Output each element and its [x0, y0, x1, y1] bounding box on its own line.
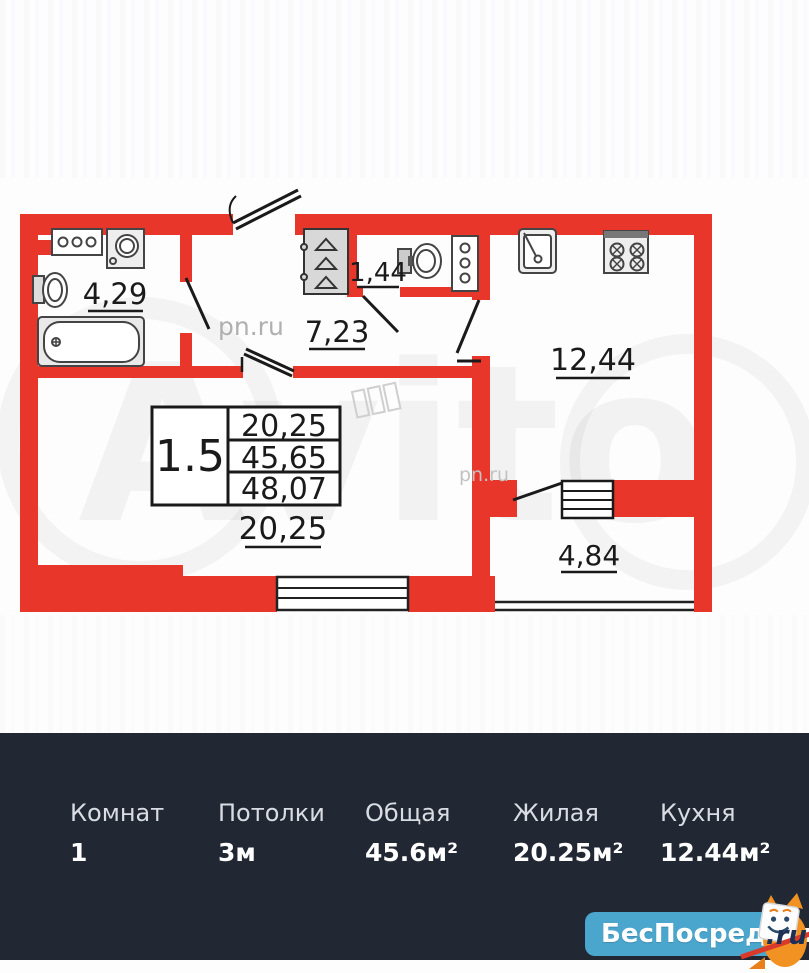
washing-machine-icon: [107, 229, 144, 268]
room-area-living: 20,25: [239, 511, 328, 547]
toilet-icon: [33, 273, 67, 307]
summary-panel: Комнат 1 Потолки 3м Общая 45.6м² Жилая 2…: [0, 733, 809, 960]
bathtub-icon: [38, 317, 144, 366]
room-area-wc: 1,44: [349, 258, 407, 288]
summary-value: 45.6м²: [365, 838, 458, 867]
summary-col-kitchen-area: Кухня 12.44м²: [660, 799, 770, 867]
balcony-step-icon: [562, 481, 613, 518]
summary-value: 20.25м²: [513, 838, 623, 867]
logo-tld: .ru: [766, 921, 807, 951]
sink-icon: [519, 229, 556, 273]
summary-label: Комнат: [70, 799, 164, 827]
summary-col-total-area: Общая 45.6м²: [365, 799, 458, 867]
pn-watermark-lower: pn.ru: [459, 464, 509, 486]
entry-door: [230, 190, 301, 229]
info-table-row-3: 48,07: [241, 472, 327, 507]
pn-watermark-upper: pn.ru: [218, 312, 284, 341]
shelf-icon: [452, 236, 478, 291]
cabinet-icon: [52, 229, 102, 255]
summary-label: Кухня: [660, 799, 770, 827]
summary-label: Жилая: [513, 799, 623, 827]
summary-col-rooms: Комнат 1: [70, 799, 164, 867]
wardrobe-icon: [301, 229, 348, 294]
besposrednika-logo: БесПосредника .ru: [585, 905, 809, 960]
info-table-left-value: 1.5: [155, 431, 225, 482]
balcony-glazing: [495, 602, 694, 610]
stove-icon: [604, 231, 648, 273]
info-table-row-1: 20,25: [241, 409, 327, 444]
summary-label: Общая: [365, 799, 458, 827]
room-area-hallway: 7,23: [305, 315, 370, 349]
room-area-balcony: 4,84: [558, 539, 620, 572]
room-area-kitchen: 12,44: [550, 343, 636, 378]
floorplan: Avito: [0, 0, 809, 733]
living-room-window: [277, 577, 408, 610]
kitchen-fixtures: [519, 229, 648, 273]
room-area-bathroom: 4,29: [83, 277, 148, 311]
summary-col-ceiling: Потолки 3м: [218, 799, 325, 867]
summary-value: 1: [70, 838, 164, 867]
summary-value: 12.44м²: [660, 838, 770, 867]
summary-label: Потолки: [218, 799, 325, 827]
wc-fixtures: [398, 236, 478, 291]
info-table: 1.5 20,25 45,65 48,07: [152, 407, 340, 507]
info-table-row-2: 45,65: [241, 441, 327, 476]
summary-col-living-area: Жилая 20.25м²: [513, 799, 623, 867]
summary-value: 3м: [218, 838, 325, 867]
